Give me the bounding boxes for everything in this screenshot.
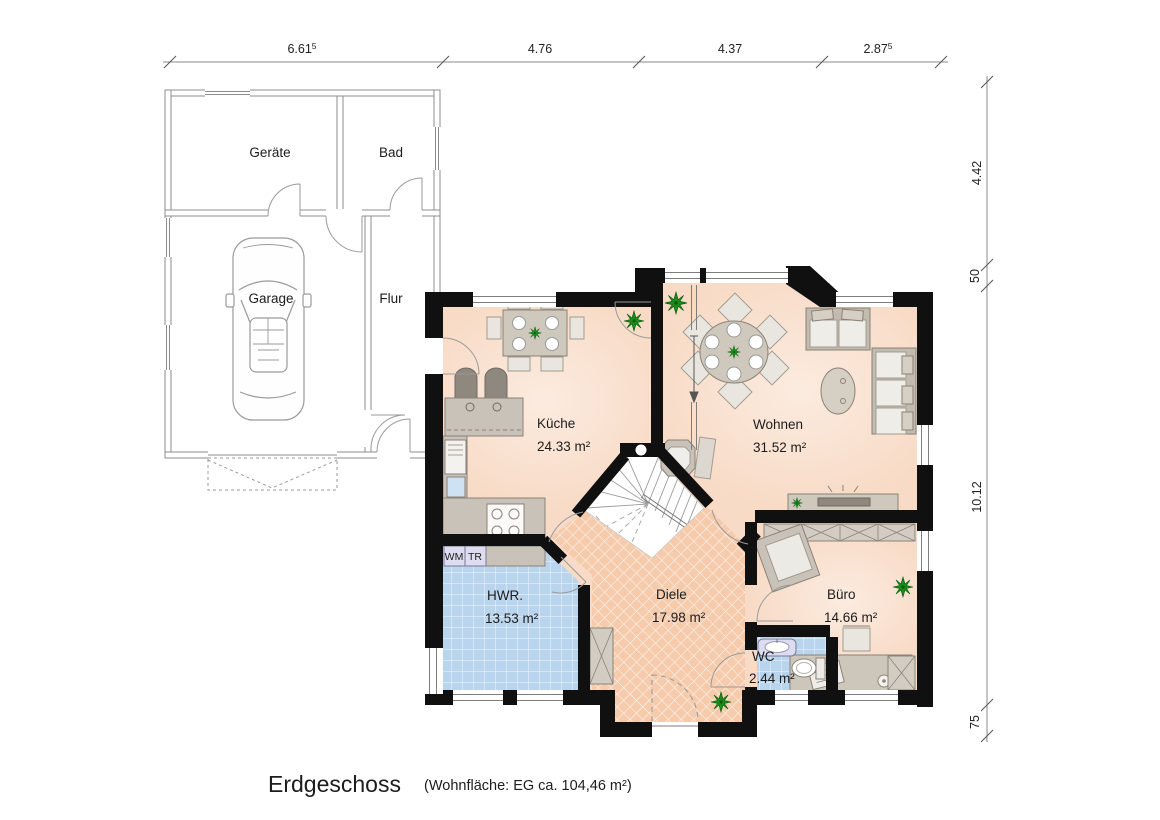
car-icon [226, 238, 311, 420]
dim-right-label-3: 75 [968, 715, 982, 729]
annex-label-geraete: Geräte [249, 145, 290, 160]
annex-label-flur: Flur [379, 291, 403, 306]
room-label-buero: Büro [827, 587, 856, 602]
room-area-hwr: 13.53 m² [485, 611, 539, 626]
plant-icon [529, 327, 542, 340]
appliance-label-tr: TR [468, 551, 482, 563]
garage-annex: Geräte Bad Garage Flur [164, 89, 441, 490]
dim-right-label-0: 4.42 [970, 161, 984, 185]
dimension-labels-right: 4.42 50 10.12 75 [968, 161, 984, 729]
page-title: Erdgeschoss [268, 771, 401, 797]
sofa-icon [872, 348, 916, 434]
room-label-kueche: Küche [537, 416, 575, 431]
garage-door-apron [208, 458, 337, 490]
plant-icon [624, 311, 644, 331]
appliance-label-wm: WM [445, 551, 464, 563]
room-label-hwr: HWR. [487, 588, 523, 603]
dim-top-label-3: 2.875 [863, 41, 892, 56]
room-area-wc: 2.44 m² [749, 671, 795, 686]
room-area-diele: 17.98 m² [652, 610, 706, 625]
room-label-wc: WC [752, 649, 775, 664]
stair-newel-post [636, 445, 647, 456]
dim-right-label-1: 50 [968, 269, 982, 283]
coffee-table-icon [821, 368, 855, 414]
plan-title: Erdgeschoss (Wohnfläche: EG ca. 104,46 m… [268, 771, 632, 797]
page-subtitle: (Wohnfläche: EG ca. 104,46 m²) [424, 778, 632, 794]
plant-icon [893, 577, 913, 597]
plant-icon [728, 346, 741, 359]
room-label-wohnen: Wohnen [753, 417, 803, 432]
plant-icon [711, 692, 731, 712]
dimension-labels-top: 6.615 4.76 4.37 2.875 [287, 41, 892, 56]
dim-top-label-1: 4.76 [528, 42, 552, 56]
annex-label-garage: Garage [248, 291, 293, 306]
plant-icon [792, 498, 803, 509]
toilet-icon [792, 658, 825, 679]
room-label-diele: Diele [656, 587, 687, 602]
floor-plan-page: 6.615 4.76 4.37 2.875 4.42 50 10.12 75 [0, 0, 1160, 820]
room-area-wohnen: 31.52 m² [753, 440, 807, 455]
dimension-chain-top [163, 56, 948, 68]
dim-top-label-0: 6.615 [287, 41, 316, 56]
loveseat-icon [806, 308, 870, 350]
room-area-buero: 14.66 m² [824, 610, 878, 625]
dim-right-label-2: 10.12 [970, 481, 984, 512]
plant-icon [665, 292, 687, 314]
room-area-kueche: 24.33 m² [537, 439, 591, 454]
dim-top-label-2: 4.37 [718, 42, 742, 56]
floor-plan-svg: 6.615 4.76 4.37 2.875 4.42 50 10.12 75 [0, 0, 1160, 820]
annex-label-bad: Bad [379, 145, 403, 160]
